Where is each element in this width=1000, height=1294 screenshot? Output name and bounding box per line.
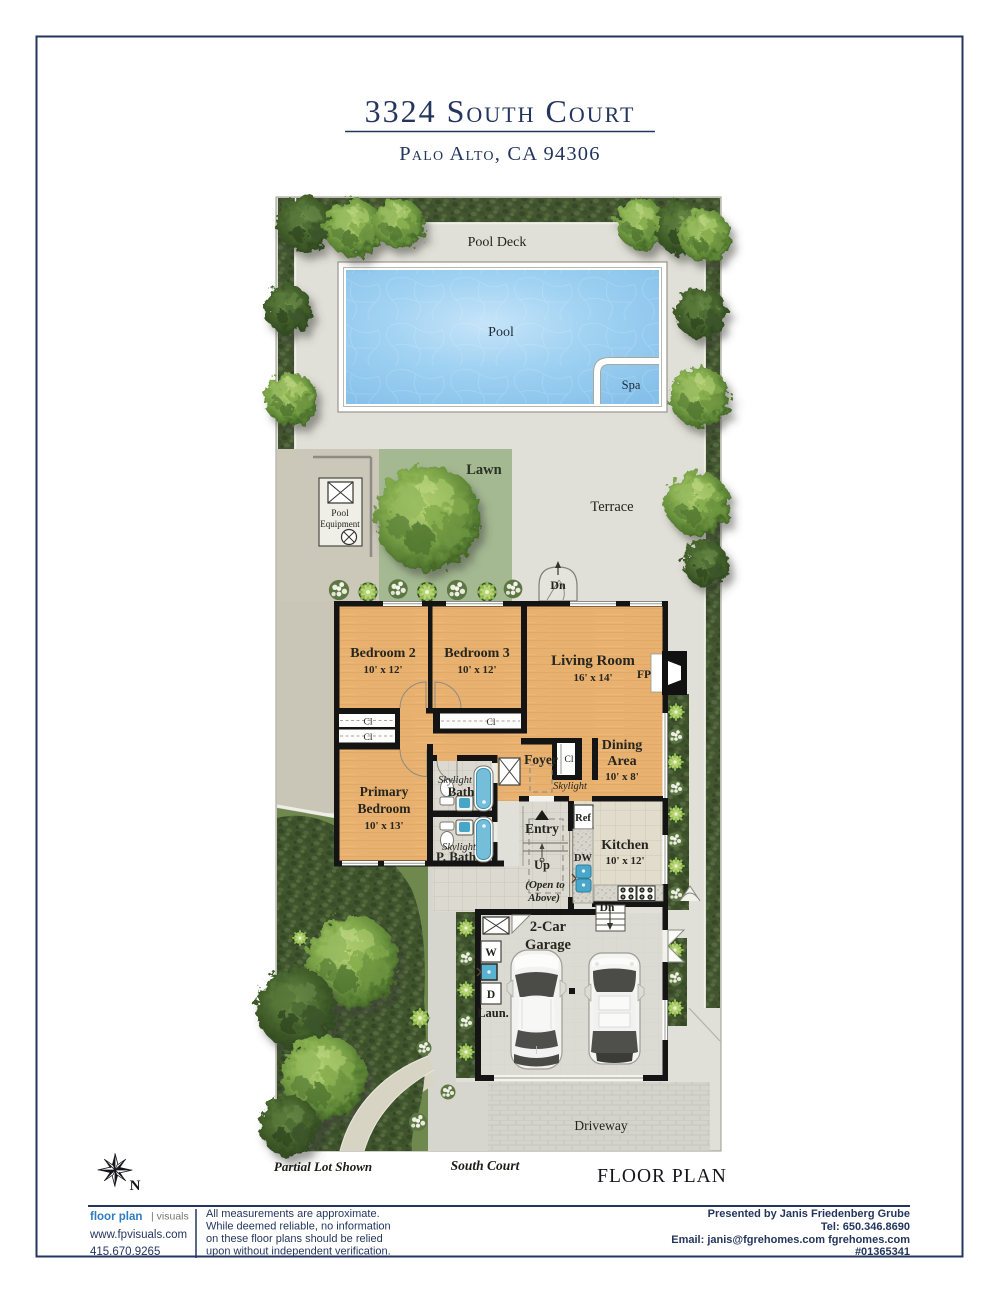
svg-text:Palo Alto, CA 94306: Palo Alto, CA 94306 bbox=[399, 143, 600, 165]
svg-text:Email: janis@fgrehomes.com fgr: Email: janis@fgrehomes.com fgrehomes.com bbox=[671, 1234, 910, 1246]
svg-text:Primary: Primary bbox=[360, 784, 409, 799]
svg-text:Pool Deck: Pool Deck bbox=[468, 235, 527, 250]
svg-text:10' x 12': 10' x 12' bbox=[457, 664, 496, 676]
svg-text:10' x 12': 10' x 12' bbox=[363, 664, 402, 676]
svg-text:FP: FP bbox=[637, 669, 651, 681]
svg-text:All measurements are approxima: All measurements are approximate. bbox=[206, 1208, 380, 1220]
svg-text:W: W bbox=[485, 947, 497, 959]
svg-text:Above): Above) bbox=[527, 892, 560, 904]
svg-text:Driveway: Driveway bbox=[574, 1118, 627, 1133]
svg-text:Bedroom 2: Bedroom 2 bbox=[350, 646, 415, 661]
svg-text:South Court: South Court bbox=[451, 1158, 521, 1173]
svg-text:upon without independent verif: upon without independent verification. bbox=[206, 1246, 391, 1258]
svg-text:Cl: Cl bbox=[565, 755, 574, 765]
svg-text:Cl: Cl bbox=[364, 733, 373, 743]
svg-text:10' x 8': 10' x 8' bbox=[605, 771, 639, 783]
svg-text:Living Room: Living Room bbox=[551, 653, 635, 669]
svg-text:P. Bath: P. Bath bbox=[436, 849, 477, 864]
svg-text:Bedroom 3: Bedroom 3 bbox=[444, 646, 509, 661]
svg-text:| visuals: | visuals bbox=[151, 1211, 189, 1223]
svg-text:FLOOR PLAN: FLOOR PLAN bbox=[597, 1166, 727, 1187]
svg-text:Skylight: Skylight bbox=[553, 781, 588, 792]
svg-text:Kitchen: Kitchen bbox=[601, 838, 649, 853]
svg-text:2-Car: 2-Car bbox=[530, 919, 567, 935]
svg-text:D: D bbox=[487, 989, 495, 1001]
svg-text:Tel: 650.346.8690: Tel: 650.346.8690 bbox=[821, 1221, 910, 1233]
svg-text:Bath: Bath bbox=[448, 784, 476, 799]
svg-text:www.fpvisuals.com: www.fpvisuals.com bbox=[89, 1229, 187, 1241]
svg-text:415.670.9265: 415.670.9265 bbox=[90, 1246, 160, 1258]
svg-text:Laun.: Laun. bbox=[477, 1006, 509, 1020]
svg-text:Spa: Spa bbox=[622, 378, 641, 392]
svg-text:Presented by Janis Friedenberg: Presented by Janis Friedenberg Grube bbox=[708, 1208, 910, 1220]
svg-text:While deemed reliable, no info: While deemed reliable, no information bbox=[206, 1221, 391, 1233]
svg-text:Bedroom: Bedroom bbox=[358, 801, 412, 816]
svg-text:floor plan: floor plan bbox=[90, 1211, 142, 1223]
svg-text:on these floor plans should be: on these floor plans should be relied bbox=[206, 1233, 383, 1245]
svg-text:Partial Lot Shown: Partial Lot Shown bbox=[274, 1159, 372, 1174]
svg-text:Area: Area bbox=[607, 754, 636, 769]
svg-text:#01365341: #01365341 bbox=[855, 1246, 910, 1258]
svg-text:Cl: Cl bbox=[364, 718, 373, 728]
svg-text:10' x 12': 10' x 12' bbox=[605, 855, 644, 867]
svg-text:10' x 13': 10' x 13' bbox=[364, 820, 403, 832]
svg-text:3324 South Court: 3324 South Court bbox=[365, 93, 636, 129]
svg-text:Cl: Cl bbox=[487, 718, 496, 728]
svg-text:Foyer: Foyer bbox=[524, 752, 558, 767]
svg-text:Equipment: Equipment bbox=[320, 519, 360, 529]
svg-text:Garage: Garage bbox=[525, 937, 571, 953]
svg-text:Lawn: Lawn bbox=[466, 462, 501, 478]
svg-text:Dn: Dn bbox=[550, 578, 566, 592]
svg-text:Dn: Dn bbox=[600, 902, 615, 914]
svg-text:N: N bbox=[130, 1178, 141, 1194]
svg-text:Entry: Entry bbox=[525, 821, 559, 836]
svg-text:Pool: Pool bbox=[331, 509, 349, 519]
svg-text:Pool: Pool bbox=[488, 325, 514, 340]
svg-text:(Open to: (Open to bbox=[525, 879, 565, 891]
svg-text:Dining: Dining bbox=[602, 738, 642, 753]
svg-text:Up: Up bbox=[534, 858, 550, 872]
svg-text:Terrace: Terrace bbox=[590, 499, 633, 515]
svg-text:Ref: Ref bbox=[575, 813, 591, 824]
svg-text:DW: DW bbox=[574, 853, 593, 864]
svg-text:16' x 14': 16' x 14' bbox=[573, 672, 612, 684]
